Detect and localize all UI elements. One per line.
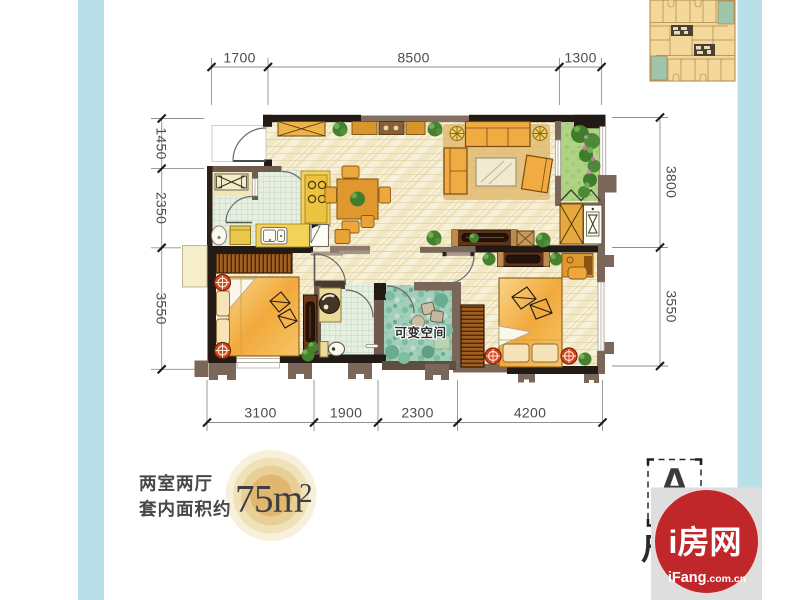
svg-text:75m: 75m: [235, 478, 303, 521]
svg-text:2300: 2300: [401, 405, 433, 421]
svg-text:2350: 2350: [154, 192, 170, 224]
svg-text:iFang.com.cn: iFang.com.cn: [668, 570, 746, 586]
svg-text:8500: 8500: [397, 50, 429, 66]
svg-text:1300: 1300: [564, 50, 596, 66]
svg-text:1900: 1900: [330, 405, 362, 421]
svg-text:4200: 4200: [514, 405, 546, 421]
svg-text:3550: 3550: [154, 292, 170, 324]
svg-text:2: 2: [299, 478, 313, 508]
svg-text:3100: 3100: [244, 405, 276, 421]
svg-text:1700: 1700: [223, 50, 255, 66]
svg-text:3800: 3800: [664, 166, 680, 198]
svg-text:两室两厅: 两室两厅: [139, 474, 213, 494]
svg-text:套内面积约: 套内面积约: [138, 499, 232, 519]
svg-text:3550: 3550: [664, 290, 680, 322]
svg-text:1450: 1450: [154, 127, 170, 159]
svg-text:可变空间: 可变空间: [394, 325, 446, 340]
svg-text:i房网: i房网: [669, 524, 742, 560]
